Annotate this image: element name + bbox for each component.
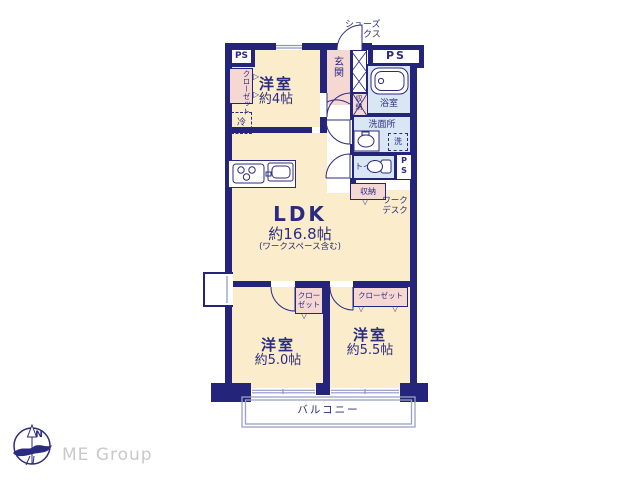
ps-vertical-line1: P xyxy=(396,156,412,166)
closet-bedroom55-label: クローゼット xyxy=(353,292,408,301)
fold-marker: ▽ xyxy=(358,305,364,313)
bedroom50-label: 洋室 約5.0帖 xyxy=(236,337,320,369)
ldk-label: LDK 約16.8帖 (ワークスペース含む) xyxy=(238,203,362,253)
ps-vertical-label: P S xyxy=(396,156,412,176)
bedroom50-name: 洋室 xyxy=(236,337,320,354)
ldk-name: LDK xyxy=(238,203,362,226)
storage-ldk-label: 収納 xyxy=(350,187,386,196)
bedroom50-size: 約5.0帖 xyxy=(236,354,320,369)
compass-north-label: N xyxy=(33,430,45,440)
closet50-line1: クロー xyxy=(295,291,323,300)
wall-bedroom4-right-lower xyxy=(320,117,327,133)
post-bottom-right xyxy=(400,383,428,402)
fold-marker: ▽ xyxy=(362,198,368,206)
fold-marker: ▽ xyxy=(392,305,398,313)
washing-machine-label: 洗 xyxy=(388,137,408,146)
ps-top-right-label: PS xyxy=(368,50,424,63)
refrigerator-label: 冷 xyxy=(231,118,252,128)
window-bedroom50-bottom xyxy=(251,388,316,395)
closet50-line2: ゼット xyxy=(295,300,323,309)
window-bedroom55-bottom xyxy=(330,388,400,395)
hallway-floor xyxy=(327,105,350,193)
toilet-label: トイレ xyxy=(355,162,379,171)
bedroom55-size: 約5.5帖 xyxy=(332,344,408,359)
bedroom55-name: 洋室 xyxy=(332,327,408,344)
bay-window xyxy=(203,272,233,307)
balcony-label: バルコニー xyxy=(240,404,417,416)
ps-vertical-line2: S xyxy=(396,166,412,176)
window-bedroom4-top xyxy=(276,43,302,50)
work-desk-line2: デスク xyxy=(378,207,412,217)
bedroom4-name: 洋室 xyxy=(240,76,312,93)
fold-marker: ▽ xyxy=(301,312,307,320)
ldk-size: 約16.8帖 xyxy=(238,226,362,243)
wall-bedroom-divider xyxy=(323,281,330,395)
floorplan-canvas: PS PS クローゼット ▷ ▷ 冷 玄関 シューズ ボックス 浴室 収納 洗面… xyxy=(0,0,640,480)
kitchen-counter xyxy=(228,160,296,188)
bedroom4-size: 約4帖 xyxy=(240,93,312,108)
entrance-label: 玄関 xyxy=(331,56,343,78)
shoebox-line1: シューズ xyxy=(345,20,381,30)
brand-text: ME Group xyxy=(62,446,153,466)
work-desk-label: ワーク デスク xyxy=(378,197,412,216)
wall-bedroom4-right-upper xyxy=(320,43,327,93)
post-bottom-left xyxy=(211,383,251,402)
bathroom-label: 浴室 xyxy=(366,99,412,109)
bedroom55-label: 洋室 約5.5帖 xyxy=(332,327,408,359)
shoebox xyxy=(352,50,367,93)
ldk-note: (ワークスペース含む) xyxy=(238,243,362,253)
washroom-label: 洗面所 xyxy=(352,120,412,130)
closet-bedroom50-label: クロー ゼット xyxy=(295,291,323,309)
bedroom4-label: 洋室 約4帖 xyxy=(240,76,312,108)
shoebox-line2: ボックス xyxy=(345,30,381,40)
storage-entrance-label: 収納 xyxy=(355,95,363,111)
ps-top-left-label: PS xyxy=(228,51,255,61)
door-gap-bedroom4 xyxy=(320,93,327,117)
post-bottom-center xyxy=(316,383,330,395)
shoebox-label: シューズ ボックス xyxy=(345,20,381,41)
